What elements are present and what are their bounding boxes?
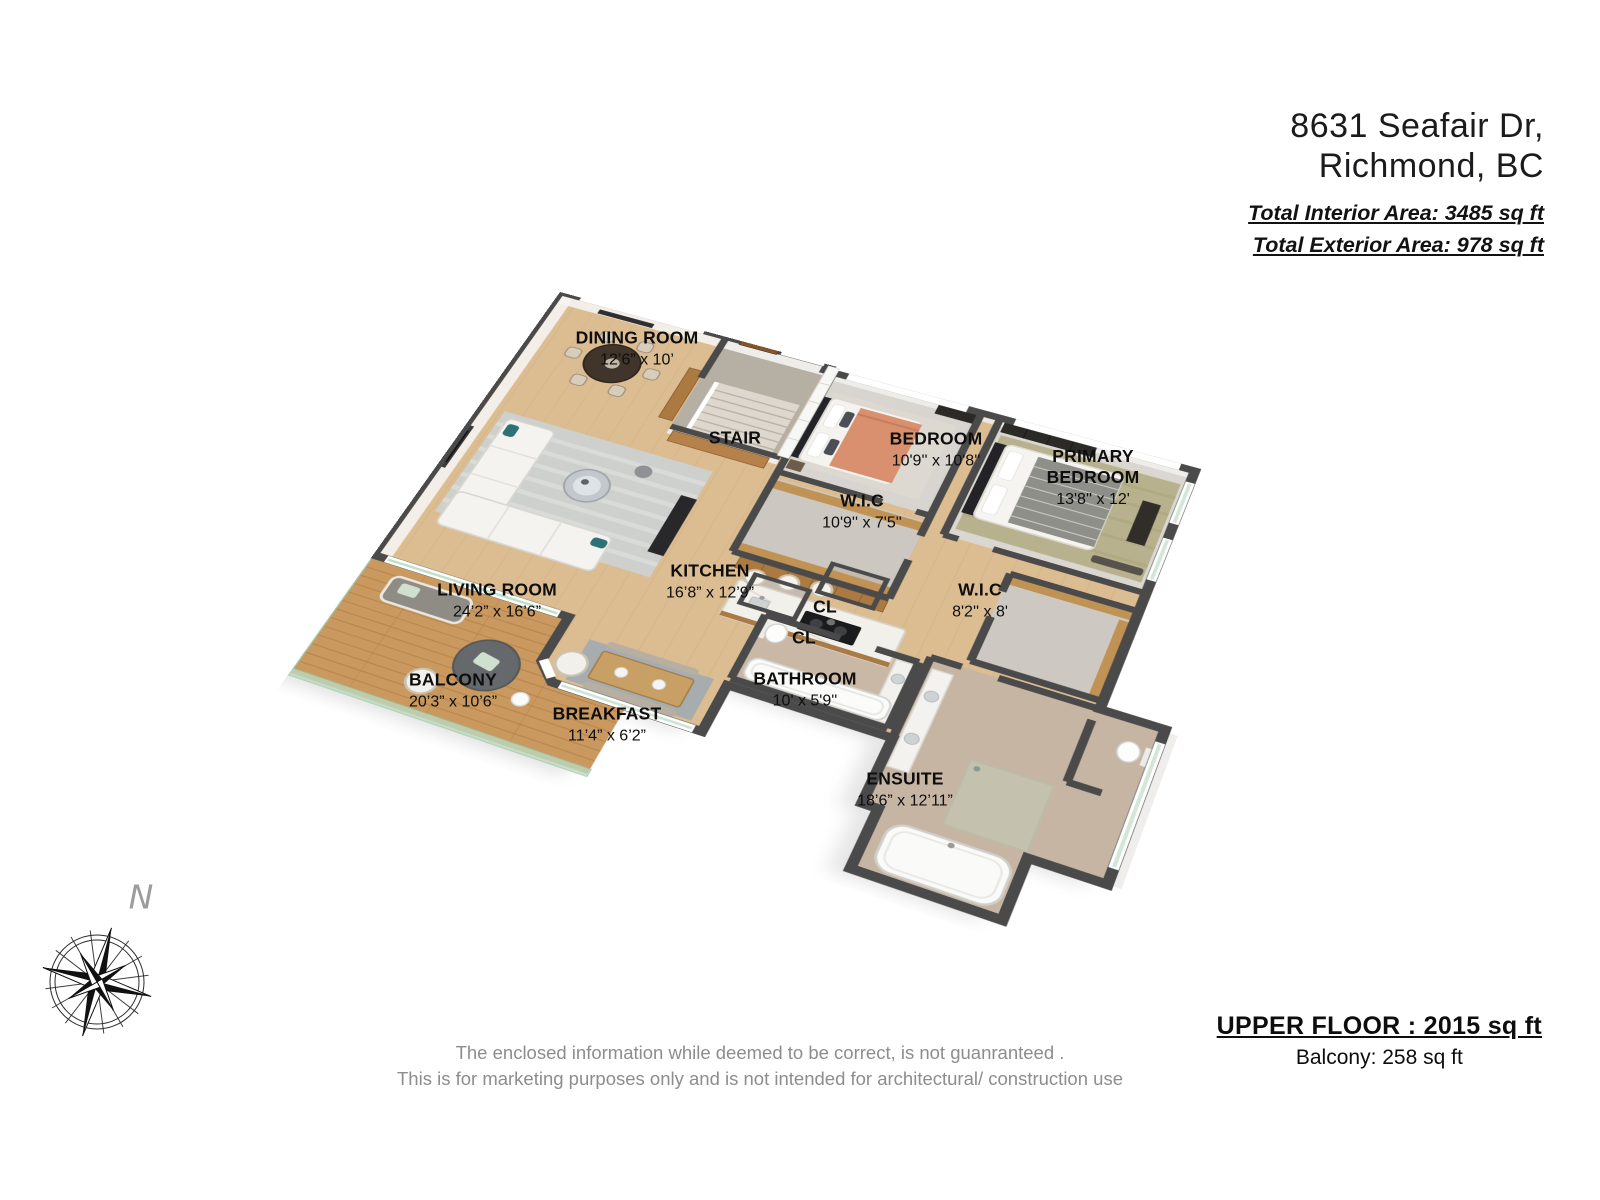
floor-subtitle: Balcony: 258 sq ft: [1217, 1046, 1542, 1070]
room-label-primary-bedroom: PRIMARY BEDROOM 13'8'' x 12': [1028, 446, 1158, 510]
floorplan-3d: [276, 292, 1273, 973]
floorplan-page: 8631 Seafair Dr, Richmond, BC Total Inte…: [0, 0, 1600, 1200]
room-label-closet2: CL: [792, 628, 816, 649]
floor-title: UPPER FLOOR : 2015 sq ft: [1217, 1012, 1542, 1041]
address-line1: 8631 Seafair Dr,: [1290, 106, 1544, 146]
room-label-breakfast: BREAKFAST 11’4” x 6’2”: [553, 704, 662, 747]
floor-summary: UPPER FLOOR : 2015 sq ft Balcony: 258 sq…: [1217, 1012, 1542, 1070]
disclaimer: The enclosed information while deemed to…: [305, 1040, 1215, 1092]
total-interior-area: Total Interior Area: 3485 sq ft: [1248, 197, 1544, 229]
room-label-ensuite: ENSUITE 18’6” x 12’11”: [857, 769, 953, 812]
room-label-kitchen: KITCHEN 16’8” x 12’9”: [666, 561, 754, 604]
address: 8631 Seafair Dr, Richmond, BC: [1290, 106, 1544, 186]
disclaimer-line2: This is for marketing purposes only and …: [305, 1066, 1215, 1092]
room-label-living: LIVING ROOM 24’2” x 16’6”: [437, 580, 557, 623]
compass-star: [43, 928, 151, 1036]
room-label-balcony: BALCONY 20’3” x 10’6”: [409, 670, 497, 713]
total-exterior-area: Total Exterior Area: 978 sq ft: [1248, 229, 1544, 261]
floorplan-svg: [276, 292, 1273, 973]
room-label-wic-primary: W.I.C 8'2'' x 8': [952, 580, 1008, 623]
room-label-dining: DINING ROOM 12’6” x 10’: [576, 328, 699, 371]
room-label-wic-bedroom: W.I.C 10'9'' x 7'5'': [822, 491, 902, 534]
room-label-stair: STAIR: [709, 428, 761, 449]
room-label-bedroom: BEDROOM 10'9'' x 10'8'': [890, 429, 983, 472]
room-label-closet1: CL: [813, 597, 837, 618]
compass-north-label: N: [129, 878, 154, 917]
address-line2: Richmond, BC: [1290, 146, 1544, 186]
disclaimer-line1: The enclosed information while deemed to…: [305, 1040, 1215, 1066]
area-summary: Total Interior Area: 3485 sq ft Total Ex…: [1248, 197, 1544, 261]
room-label-bathroom: BATHROOM 10' x 5'9'': [753, 669, 856, 712]
